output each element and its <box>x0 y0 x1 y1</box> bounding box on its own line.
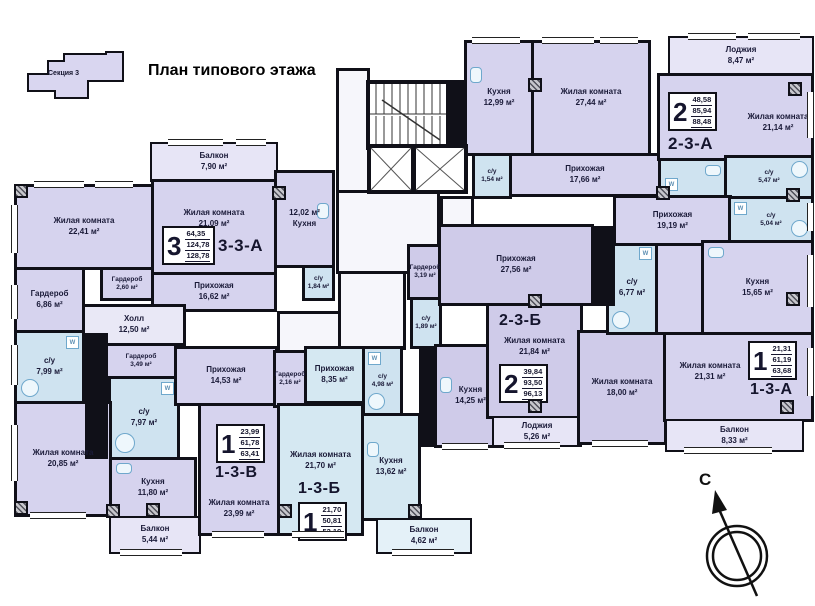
room-wardrobe-216: Гардероб2,16 м² <box>273 350 307 408</box>
room-wardrobe-349: Гардероб3,49 м² <box>103 343 179 379</box>
window <box>684 447 772 454</box>
room-kitchen-1565: Кухня15,65 м² <box>701 240 814 335</box>
bath-tub-icon <box>791 161 808 178</box>
apartment-code-3-3-a: 3-3-А <box>218 236 263 256</box>
key-plan-shape <box>24 50 132 106</box>
window <box>748 33 800 40</box>
column <box>786 292 800 306</box>
washer-icon: W <box>368 352 381 365</box>
bath-tub-icon <box>115 433 135 453</box>
window <box>30 512 86 519</box>
column <box>14 184 28 198</box>
apartment-code-1-3-a: 1-3-А <box>750 381 793 399</box>
room-su-184: с/у1,84 м² <box>302 265 335 301</box>
wall-shaft <box>419 346 436 447</box>
wall-shaft <box>85 333 108 459</box>
column <box>786 188 800 202</box>
room-loggia-847: Лоджия8,47 м² <box>668 36 814 76</box>
bath-tub-icon <box>21 379 39 397</box>
kitchen-appliance-icon <box>440 377 452 393</box>
key-plan-label: Секция 3 <box>48 70 79 77</box>
apartment-code-1-3-v: 1-3-В <box>215 464 258 482</box>
room-hallway-2756: Прихожая27,56 м² <box>438 224 594 306</box>
apartment-stamp-2-3-a: 2 48,5885,9488,48 <box>668 92 717 131</box>
apartment-stamp-2-3-b: 2 39,8493,5096,13 <box>499 364 548 403</box>
room-hallway-1919: Прихожая19,19 м² <box>613 195 732 246</box>
window <box>592 440 648 447</box>
room-su-504: с/у5,04 м² W <box>728 196 814 243</box>
corridor <box>336 68 370 193</box>
column <box>788 82 802 96</box>
kitchen-appliance-icon <box>367 442 379 457</box>
window <box>95 181 133 188</box>
washer-icon: W <box>734 202 747 215</box>
column <box>272 186 286 200</box>
room-hallway-835: Прихожая8,35 м² <box>304 346 365 404</box>
window <box>807 255 814 307</box>
room-su-547: с/у5,47 м² <box>724 155 814 199</box>
washer-icon: W <box>66 336 79 349</box>
window <box>600 37 638 44</box>
window <box>807 348 814 396</box>
window <box>212 531 264 538</box>
column <box>106 504 120 518</box>
window <box>542 37 594 44</box>
corridor <box>338 271 406 350</box>
window <box>11 285 18 319</box>
window <box>807 92 814 138</box>
window <box>442 443 488 450</box>
room-su-799: с/у7,99 м² W <box>14 330 85 404</box>
column <box>146 503 160 517</box>
window <box>168 139 223 146</box>
room-hallway-1766: Прихожая17,66 м² <box>509 153 661 197</box>
room-su-154: с/у1,54 м² <box>472 153 512 199</box>
window <box>688 33 736 40</box>
room-living-2109: Жилая комната21,09 м² 3 64,35124,78128,7… <box>151 179 277 275</box>
window <box>11 425 18 481</box>
column <box>528 399 542 413</box>
apartment-code-2-3-a: 2-3-А <box>668 134 713 154</box>
key-plan: Секция 3 <box>24 50 132 106</box>
compass: С <box>685 468 795 603</box>
bath-tub-icon <box>612 311 630 329</box>
column <box>528 294 542 308</box>
washer-icon: W <box>161 382 174 395</box>
room-living-1800: Жилая комната18,00 м² <box>577 330 667 445</box>
window <box>392 549 454 556</box>
window <box>504 442 560 449</box>
apartment-code-2-3-b: 2-3-Б <box>499 312 541 330</box>
apartment-stamp-1-3-a: 1 21,3161,1963,68 <box>748 341 797 380</box>
page-title: План типового этажа <box>148 62 316 80</box>
bath-tub-icon <box>791 220 808 237</box>
stair-elevator-core <box>366 80 470 196</box>
kitchen-appliance-icon <box>708 247 724 258</box>
room-living-2744: Жилая комната27,44 м² <box>531 40 651 156</box>
room-wardrobe-260: Гардероб2,60 м² <box>100 267 154 301</box>
room-hallway-1453: Прихожая14,53 м² <box>174 346 278 406</box>
room-balcony-790: Балкон7,90 м² <box>150 142 278 182</box>
window <box>807 203 814 231</box>
window <box>34 181 84 188</box>
sink-icon <box>705 165 721 176</box>
column <box>656 186 670 200</box>
kitchen-appliance-icon <box>470 67 482 83</box>
compass-north-label: С <box>699 470 711 490</box>
floor-plan-canvas: Секция 3 План типового этажа Балкон7,90 … <box>0 0 815 606</box>
window <box>472 37 520 44</box>
window <box>11 205 18 253</box>
window <box>292 531 344 538</box>
window <box>11 345 18 385</box>
window <box>120 549 182 556</box>
column <box>278 504 292 518</box>
room-kitchen-1202: 12,02 м²Кухня <box>274 170 335 268</box>
wall-shaft <box>592 226 615 306</box>
room-living-2399: 1 23,9961,7863,41 1-3-В Жилая комната23,… <box>198 403 280 536</box>
column <box>408 504 422 518</box>
apartment-stamp-1-3-v: 1 23,9961,7863,41 <box>216 424 265 463</box>
apartment-stamp-3-3-a: 3 64,35124,78128,78 <box>162 226 215 265</box>
column <box>780 400 794 414</box>
kitchen-appliance-icon <box>116 463 132 474</box>
room-hallway-extension <box>655 243 707 335</box>
room-living-2241: Жилая комната22,41 м² <box>14 184 154 270</box>
washer-icon: W <box>639 247 652 260</box>
window <box>236 139 266 146</box>
apartment-code-1-3-b: 1-3-Б <box>298 480 340 498</box>
column <box>14 501 28 515</box>
column <box>528 78 542 92</box>
bath-tub-icon <box>368 393 385 410</box>
room-su-797: с/у7,97 м² W <box>108 376 180 460</box>
room-su-498: с/у4,98 м² W <box>362 346 403 416</box>
room-kitchen-1299: Кухня12,99 м² <box>464 40 534 156</box>
room-wardrobe-686: Гардероб6,86 м² <box>14 267 85 333</box>
